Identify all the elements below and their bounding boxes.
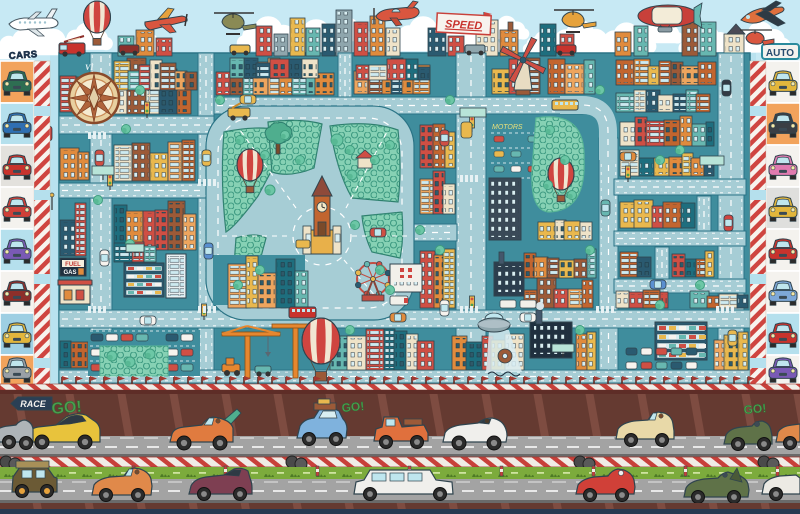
svg-text:CARS: CARS (8, 49, 38, 62)
svg-text:GAS: GAS (63, 270, 76, 276)
svg-text:AUTO: AUTO (766, 48, 794, 59)
svg-text:SPEED: SPEED (445, 18, 483, 32)
svg-text:VI: VI (85, 63, 94, 72)
svg-text:RACE: RACE (20, 399, 46, 409)
svg-text:GO!: GO! (743, 401, 767, 417)
svg-text:MOTORS: MOTORS (492, 124, 523, 131)
svg-text:GO!: GO! (341, 399, 365, 415)
svg-text:FUEL: FUEL (65, 262, 81, 268)
